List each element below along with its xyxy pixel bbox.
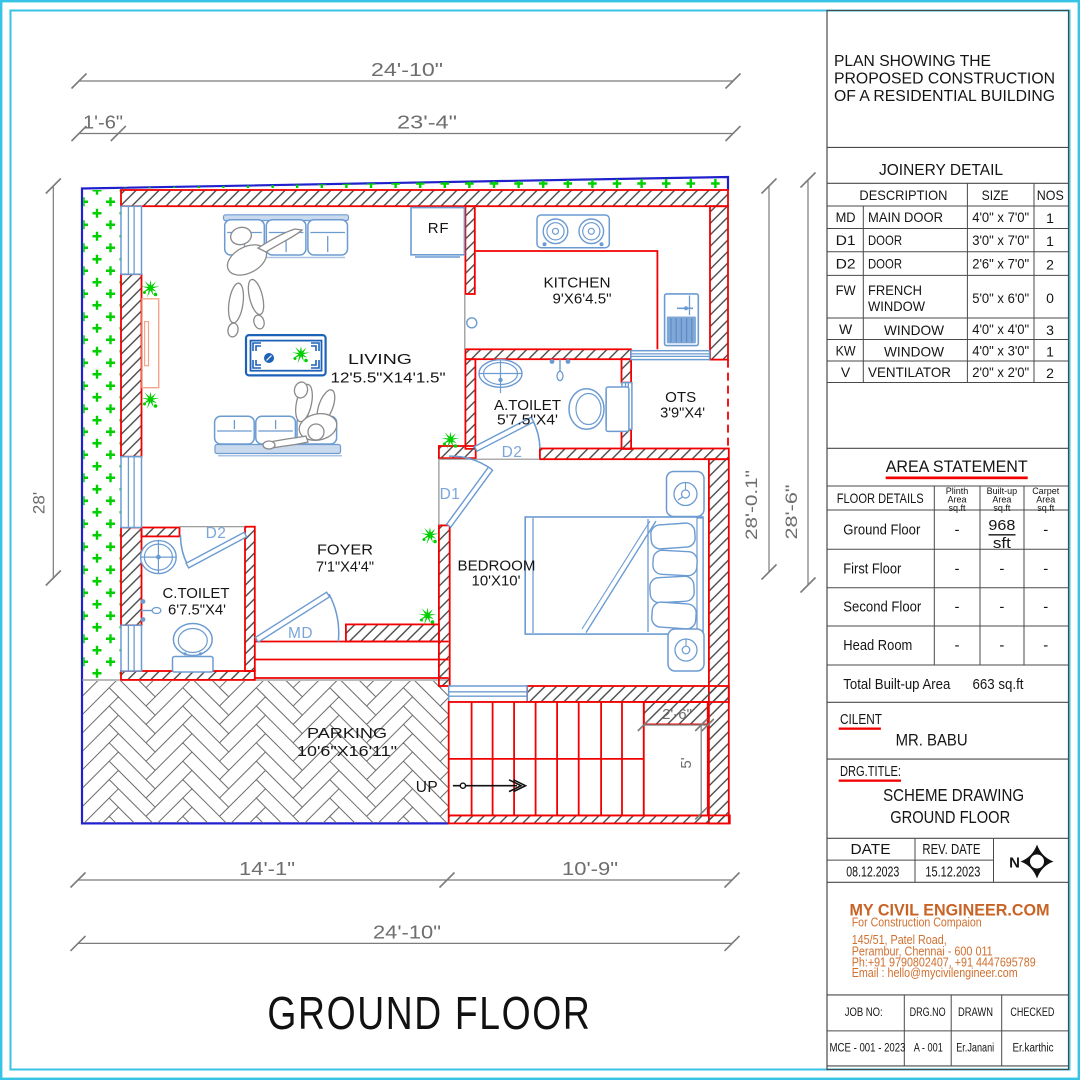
- svg-text:Second Floor: Second Floor: [843, 599, 921, 616]
- svg-text:4'0" x 4'0": 4'0" x 4'0": [972, 321, 1029, 337]
- svg-text:0: 0: [1046, 290, 1054, 306]
- svg-text:28'-6": 28'-6": [782, 485, 801, 540]
- svg-text:C.TOILET: C.TOILET: [163, 585, 230, 602]
- svg-text:GROUND FLOOR: GROUND FLOOR: [890, 807, 1010, 827]
- svg-text:N: N: [1009, 855, 1020, 872]
- svg-text:2: 2: [1046, 257, 1054, 273]
- svg-text:DOOR: DOOR: [868, 232, 902, 248]
- svg-text:9'X6'4.5": 9'X6'4.5": [553, 291, 612, 308]
- svg-text:WINDOW: WINDOW: [884, 322, 945, 338]
- svg-text:sq.ft: sq.ft: [1037, 503, 1055, 513]
- svg-text:2: 2: [1046, 365, 1054, 381]
- svg-text:UP: UP: [416, 779, 439, 796]
- svg-text:JOINERY DETAIL: JOINERY DETAIL: [879, 162, 1003, 179]
- svg-text:5': 5': [678, 757, 695, 768]
- svg-text:DESCRIPTION: DESCRIPTION: [859, 187, 947, 203]
- svg-text:10'-9": 10'-9": [562, 859, 618, 879]
- svg-text:663 sq.ft: 663 sq.ft: [973, 676, 1025, 693]
- svg-text:sq.ft: sq.ft: [948, 503, 966, 513]
- svg-text:W: W: [839, 321, 853, 337]
- svg-text:24'-10": 24'-10": [373, 922, 441, 942]
- svg-text:MAIN DOOR: MAIN DOOR: [868, 209, 943, 225]
- svg-text:FRENCH: FRENCH: [868, 282, 922, 298]
- svg-text:DRG.TITLE:: DRG.TITLE:: [840, 764, 901, 780]
- svg-text:4'0" x 3'0": 4'0" x 3'0": [972, 343, 1029, 359]
- svg-text:2'0" x 2'0": 2'0" x 2'0": [972, 364, 1029, 380]
- svg-text:3: 3: [1046, 322, 1054, 338]
- svg-text:Head Room: Head Room: [843, 637, 912, 654]
- svg-text:D1: D1: [836, 232, 856, 248]
- svg-text:3'0" x 7'0": 3'0" x 7'0": [972, 232, 1029, 248]
- svg-text:GROUND FLOOR: GROUND FLOOR: [267, 987, 591, 1039]
- svg-text:First Floor: First Floor: [843, 560, 901, 577]
- svg-text:SCHEME DRAWING: SCHEME DRAWING: [883, 785, 1024, 805]
- svg-text:WINDOW: WINDOW: [884, 344, 945, 360]
- svg-text:-: -: [1043, 599, 1048, 616]
- svg-text:SIZE: SIZE: [982, 187, 1009, 203]
- svg-text:-: -: [1043, 637, 1048, 654]
- svg-text:-: -: [955, 560, 960, 577]
- svg-text:3'9"X4': 3'9"X4': [660, 404, 705, 421]
- svg-text:4'0" x 7'0": 4'0" x 7'0": [972, 209, 1029, 225]
- svg-text:MR. BABU: MR. BABU: [896, 732, 968, 750]
- svg-text:15.12.2023: 15.12.2023: [925, 865, 980, 881]
- svg-text:10'X10': 10'X10': [472, 573, 521, 590]
- svg-text:NOS: NOS: [1037, 187, 1064, 203]
- svg-text:MCE - 001 - 2023: MCE - 001 - 2023: [830, 1042, 906, 1054]
- svg-text:sft: sft: [993, 535, 1012, 552]
- svg-text:REV. DATE: REV. DATE: [922, 842, 980, 858]
- svg-text:-: -: [999, 560, 1004, 577]
- svg-text:28'-0.1": 28'-0.1": [742, 470, 761, 540]
- svg-text:RF: RF: [428, 220, 450, 237]
- svg-text:MD: MD: [836, 209, 856, 225]
- svg-text:V: V: [841, 364, 851, 380]
- svg-text:PROPOSED CONSTRUCTION: PROPOSED CONSTRUCTION: [834, 71, 1055, 88]
- svg-text:JOB NO:: JOB NO:: [845, 1005, 883, 1019]
- svg-text:WINDOW: WINDOW: [868, 298, 926, 314]
- svg-text:CILENT: CILENT: [840, 712, 882, 728]
- svg-text:23'-4": 23'-4": [397, 113, 457, 133]
- svg-text:1: 1: [1046, 344, 1054, 360]
- svg-text:DRG.NO: DRG.NO: [910, 1005, 946, 1019]
- svg-text:PLAN SHOWING THE: PLAN SHOWING THE: [834, 53, 991, 70]
- svg-text:-: -: [999, 637, 1004, 654]
- svg-text:Email : hello@mycivilengineer.: Email : hello@mycivilengineer.com: [852, 966, 1018, 980]
- svg-text:DATE: DATE: [851, 842, 891, 858]
- svg-text:08.12.2023: 08.12.2023: [846, 865, 899, 881]
- svg-text:CHECKED: CHECKED: [1010, 1005, 1054, 1019]
- svg-text:1: 1: [1046, 210, 1054, 226]
- svg-text:10'6"X16'11": 10'6"X16'11": [297, 743, 397, 760]
- svg-text:Ground Floor: Ground Floor: [843, 522, 920, 539]
- svg-text:sq.ft: sq.ft: [993, 503, 1011, 513]
- svg-text:968: 968: [988, 517, 1015, 534]
- svg-text:A - 001: A - 001: [914, 1042, 943, 1054]
- svg-text:28': 28': [30, 492, 49, 514]
- svg-text:6'7.5"X4': 6'7.5"X4': [168, 602, 226, 619]
- svg-text:D2: D2: [206, 525, 227, 542]
- svg-text:MD: MD: [288, 625, 313, 642]
- svg-text:KITCHEN: KITCHEN: [544, 275, 611, 292]
- svg-text:2'6" x 7'0": 2'6" x 7'0": [972, 256, 1029, 272]
- svg-text:-: -: [955, 599, 960, 616]
- svg-text:PARKING: PARKING: [307, 725, 387, 742]
- svg-text:Er.Janani: Er.Janani: [956, 1042, 994, 1054]
- svg-text:-: -: [955, 637, 960, 654]
- svg-text:KW: KW: [836, 343, 857, 359]
- svg-text:2'-6": 2'-6": [662, 706, 692, 723]
- svg-text:12'5.5"X14'1.5": 12'5.5"X14'1.5": [331, 370, 446, 387]
- svg-text:FLOOR DETAILS: FLOOR DETAILS: [837, 490, 924, 506]
- svg-text:Total Built-up Area: Total Built-up Area: [843, 676, 951, 693]
- svg-text:D2: D2: [836, 256, 856, 272]
- svg-text:AREA STATEMENT: AREA STATEMENT: [886, 458, 1028, 476]
- svg-text:D1: D1: [440, 486, 461, 503]
- svg-text:1'-6": 1'-6": [83, 113, 123, 133]
- svg-text:OF A RESIDENTIAL BUILDING: OF A RESIDENTIAL BUILDING: [834, 88, 1055, 105]
- svg-text:24'-10": 24'-10": [371, 60, 443, 80]
- svg-text:-: -: [999, 599, 1004, 616]
- svg-text:Er.karthic: Er.karthic: [1013, 1042, 1054, 1054]
- svg-text:LIVING: LIVING: [348, 351, 412, 368]
- svg-text:-: -: [955, 522, 960, 539]
- svg-text:-: -: [1043, 560, 1048, 577]
- svg-text:FOYER: FOYER: [317, 542, 373, 559]
- svg-text:1: 1: [1046, 233, 1054, 249]
- svg-text:FW: FW: [836, 282, 857, 298]
- svg-text:DRAWN: DRAWN: [958, 1005, 993, 1019]
- svg-text:14'-1": 14'-1": [239, 859, 295, 879]
- svg-text:7'1"X4'4": 7'1"X4'4": [316, 559, 374, 576]
- svg-text:-: -: [1043, 522, 1048, 539]
- svg-text:5'7.5"X4': 5'7.5"X4': [497, 412, 558, 429]
- svg-text:VENTILATOR: VENTILATOR: [868, 364, 951, 380]
- svg-text:DOOR: DOOR: [868, 256, 902, 272]
- svg-text:For Construction Compaion: For Construction Compaion: [852, 916, 982, 930]
- svg-text:D2: D2: [502, 444, 523, 461]
- svg-text:5'0" x 6'0": 5'0" x 6'0": [972, 290, 1029, 306]
